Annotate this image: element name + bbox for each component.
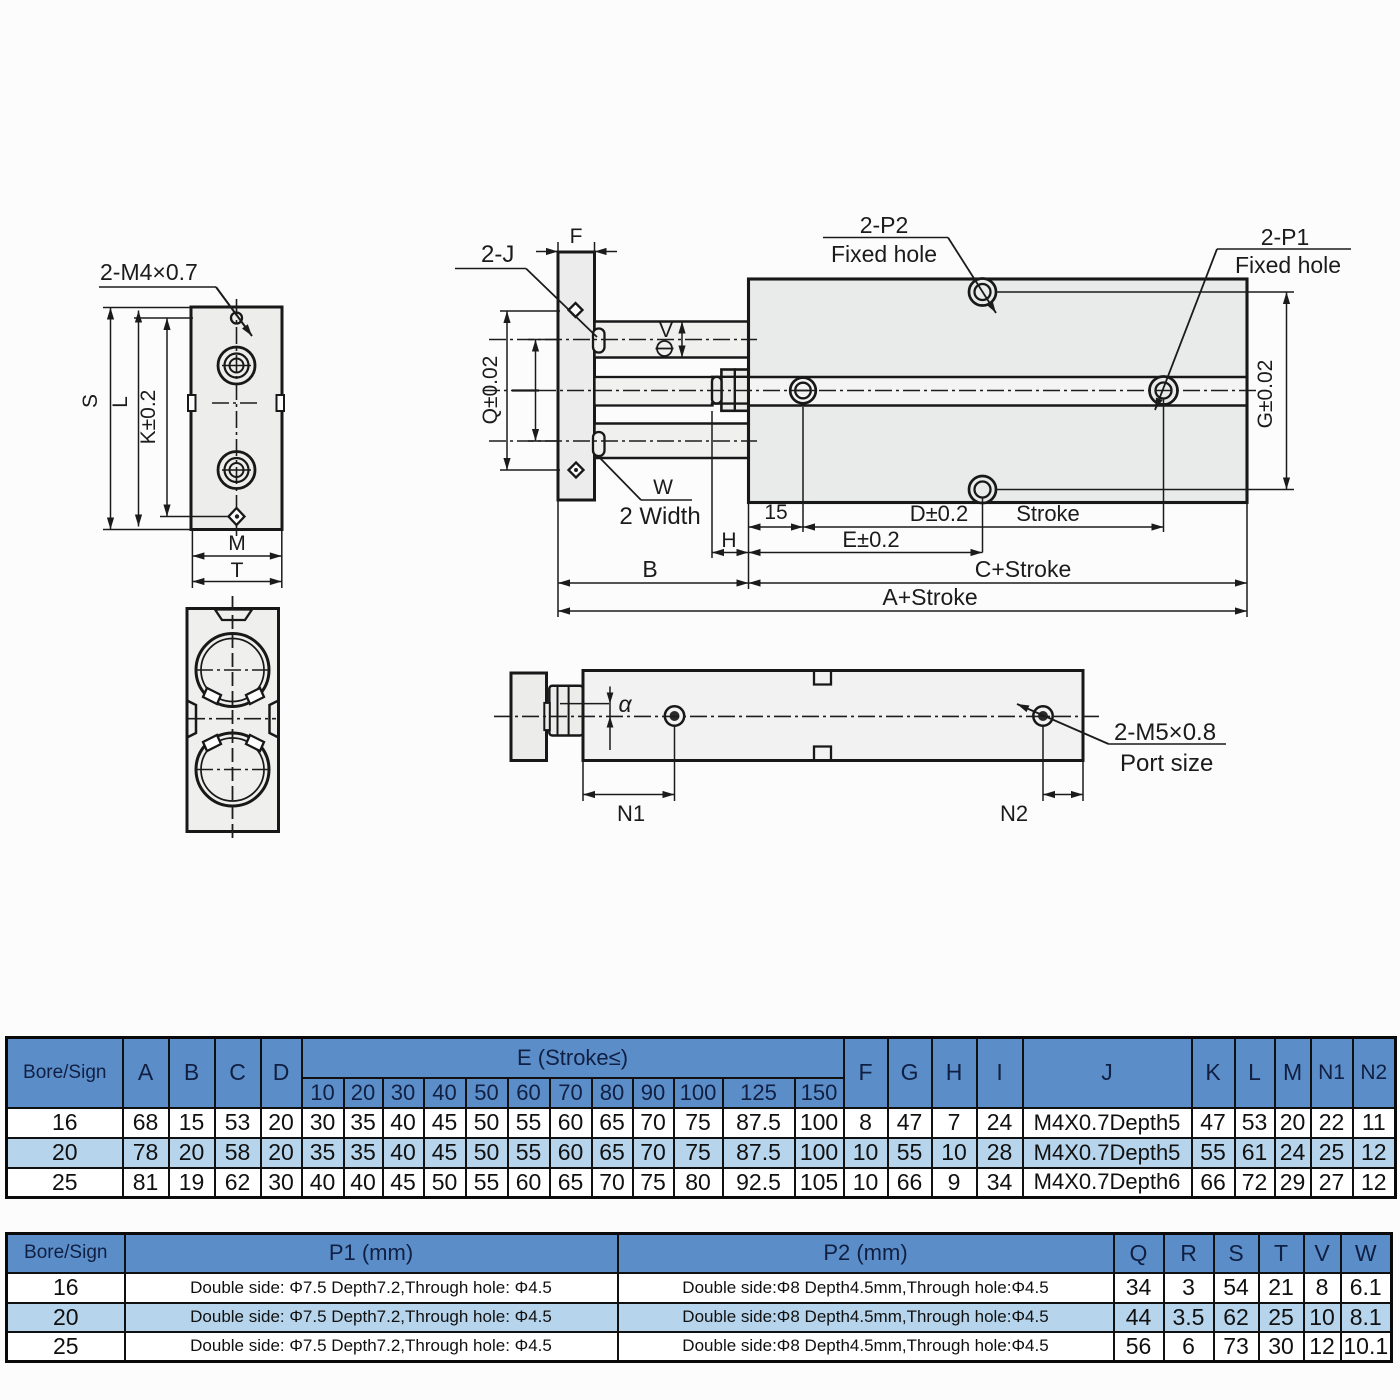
svg-text:2-M4×0.7: 2-M4×0.7 <box>100 259 198 285</box>
svg-text:K±0.2: K±0.2 <box>137 390 160 445</box>
svg-text:Port size: Port size <box>1120 750 1213 777</box>
svg-text:L: L <box>109 396 132 408</box>
svg-text:Fixed hole: Fixed hole <box>1235 252 1341 278</box>
svg-text:2-P2: 2-P2 <box>860 212 909 238</box>
svg-text:Q±0.02: Q±0.02 <box>479 356 502 425</box>
svg-text:2-J: 2-J <box>481 241 514 268</box>
svg-text:F: F <box>570 225 583 248</box>
svg-text:T: T <box>231 559 244 582</box>
svg-text:2-P1: 2-P1 <box>1261 224 1310 250</box>
svg-text:G±0.02: G±0.02 <box>1254 360 1277 429</box>
svg-text:2 Width: 2 Width <box>619 503 700 530</box>
svg-text:V: V <box>659 319 673 342</box>
svg-text:S: S <box>79 394 102 408</box>
svg-text:2-M5×0.8: 2-M5×0.8 <box>1114 719 1216 746</box>
svg-text:C+Stroke: C+Stroke <box>975 556 1072 582</box>
svg-text:W: W <box>653 476 673 499</box>
svg-text:A+Stroke: A+Stroke <box>882 584 977 610</box>
svg-text:Stroke: Stroke <box>1016 501 1080 526</box>
svg-text:H: H <box>721 529 736 552</box>
svg-text:M: M <box>228 532 246 555</box>
svg-text:E±0.2: E±0.2 <box>842 527 899 552</box>
svg-text:D±0.2: D±0.2 <box>910 501 969 526</box>
svg-text:15: 15 <box>764 501 787 524</box>
svg-text:N1: N1 <box>617 801 645 826</box>
svg-text:Fixed hole: Fixed hole <box>831 241 937 267</box>
svg-text:α: α <box>618 691 632 717</box>
svg-text:N2: N2 <box>1000 801 1028 826</box>
svg-text:B: B <box>642 556 657 582</box>
